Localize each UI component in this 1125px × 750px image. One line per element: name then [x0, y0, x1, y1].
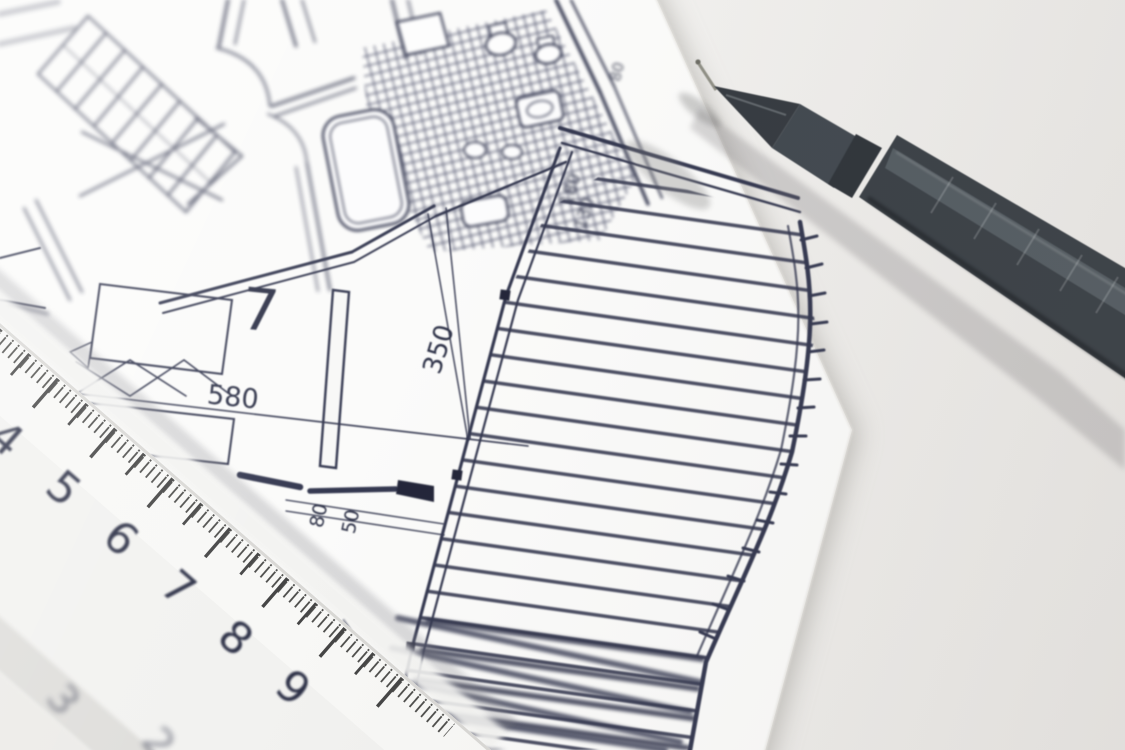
dimension-label-580: 580	[206, 379, 261, 415]
photo-architectural-blueprint: 80 180 130	[0, 0, 1125, 750]
basin	[464, 142, 486, 158]
washing-machine	[397, 13, 449, 55]
basin	[502, 145, 522, 159]
pen-needle-tip	[699, 64, 716, 90]
room-number: 7	[238, 274, 282, 345]
